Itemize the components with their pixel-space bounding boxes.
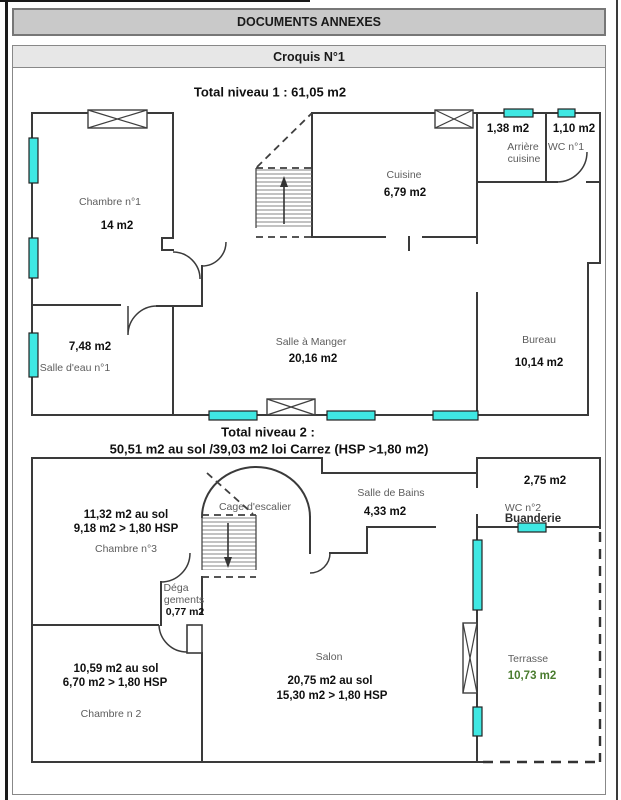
room-name-chambre3: Chambre n°3 (95, 543, 157, 555)
room-area-bureau: 10,14 m2 (515, 357, 564, 369)
room-name-cage-escalier: Cage d'escalier (219, 501, 291, 513)
room-area-wc1: 1,10 m2 (553, 123, 595, 135)
page-right-border (616, 0, 618, 800)
level1-title: Total niveau 1 : 61,05 m2 (194, 85, 346, 100)
room-name-buanderie: Buanderie (505, 513, 561, 525)
page-left-border (5, 0, 8, 800)
room-name-bureau: Bureau (522, 334, 556, 346)
room-name-degagements-2: gements (164, 594, 204, 606)
room-area-chambre1: 14 m2 (101, 220, 134, 232)
level2-title-line2: 50,51 m2 au sol /39,03 m2 loi Carrez (HS… (110, 442, 429, 457)
room-area-sol-chambre2: 10,59 m2 au sol (73, 663, 158, 675)
room-name-salle-a-manger: Salle à Manger (276, 336, 347, 348)
room-name-terrasse: Terrasse (508, 653, 548, 665)
room-name-cuisine: Cuisine (386, 169, 421, 181)
documents-annexes-header: DOCUMENTS ANNEXES (12, 8, 606, 36)
room-area-hsp-chambre3: 9,18 m2 > 1,80 HSP (74, 523, 179, 535)
annex-document-page: DOCUMENTS ANNEXES Croquis N°1 (0, 0, 621, 800)
room-area-arriere-cuisine: 1,38 m2 (487, 123, 529, 135)
room-name-arriere-cuisine-2: cuisine (508, 153, 541, 165)
room-area-cuisine: 6,79 m2 (384, 187, 426, 199)
room-area-degagements: 0,77 m2 (166, 606, 205, 618)
room-name-salon: Salon (316, 651, 343, 663)
room-area-hsp-chambre2: 6,70 m2 > 1,80 HSP (63, 677, 168, 689)
room-area-sol-chambre3: 11,32 m2 au sol (84, 509, 168, 521)
room-area-salle-de-bains: 4,33 m2 (364, 506, 406, 518)
room-area-sol-salon: 20,75 m2 au sol (287, 675, 372, 687)
room-name-chambre1: Chambre n°1 (79, 196, 141, 208)
room-area-salle-a-manger: 20,16 m2 (289, 353, 338, 365)
croquis-title: Croquis N°1 (273, 50, 345, 64)
documents-annexes-title: DOCUMENTS ANNEXES (237, 15, 381, 29)
room-area-wc2: 2,75 m2 (524, 475, 566, 487)
level2-title-line1: Total niveau 2 : (221, 425, 315, 440)
room-name-chambre2: Chambre n 2 (81, 708, 142, 720)
room-name-arriere-cuisine-1: Arrière (507, 141, 539, 153)
page-top-border (0, 0, 310, 2)
room-area-terrasse: 10,73 m2 (508, 670, 557, 682)
room-area-hsp-salon: 15,30 m2 > 1,80 HSP (277, 690, 388, 702)
room-name-degagements-1: Déga (163, 582, 188, 594)
room-area-salle-eau: 7,48 m2 (69, 341, 111, 353)
room-name-salle-eau: Salle d'eau n°1 (40, 362, 110, 374)
croquis-header: Croquis N°1 (12, 45, 606, 68)
room-name-wc1: WC n°1 (548, 141, 584, 153)
room-name-salle-de-bains: Salle de Bains (357, 487, 424, 499)
